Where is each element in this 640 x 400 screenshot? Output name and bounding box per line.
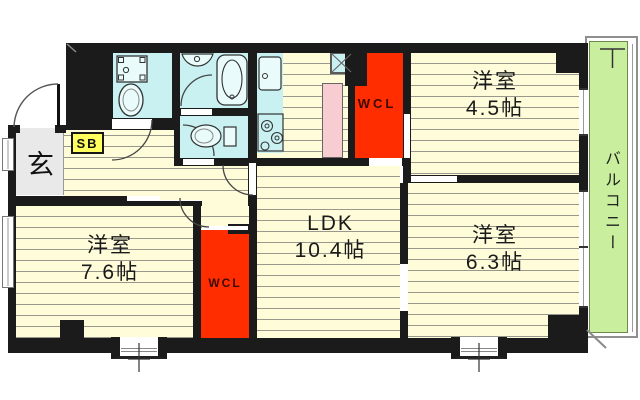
vanity-icon xyxy=(182,54,213,66)
corner-mark xyxy=(67,44,76,52)
stove-icon xyxy=(258,114,283,151)
washing-machine-icon xyxy=(117,56,147,82)
floorplan-annotations xyxy=(0,0,640,400)
room-area: 10.4帖 xyxy=(258,237,403,264)
room-label-west45: 洋室 4.5帖 xyxy=(410,68,580,123)
room-name: 洋室 xyxy=(410,222,580,249)
room-area: 7.6帖 xyxy=(30,259,190,286)
room-name: 洋室 xyxy=(410,68,580,95)
door-swing-arc xyxy=(180,198,209,227)
entrance-label: 玄 xyxy=(22,143,59,182)
toilet-icon xyxy=(191,125,236,147)
bathtub-icon xyxy=(217,55,247,105)
room-area: 6.3帖 xyxy=(410,249,580,276)
room-name: LDK xyxy=(258,210,403,237)
washbasin-icon xyxy=(119,84,143,116)
door-swing-arc xyxy=(181,75,212,106)
room-area: 4.5帖 xyxy=(410,95,580,122)
kitchen-sink-icon xyxy=(259,57,281,90)
wcl-bottom-label: WCL xyxy=(201,276,249,290)
room-label-ldk: LDK 10.4帖 xyxy=(258,210,403,265)
room-label-west76: 洋室 7.6帖 xyxy=(30,232,190,287)
balcony-label: バルコニー xyxy=(596,112,622,292)
door-swing-arc xyxy=(223,165,253,195)
hatch-cross-icon xyxy=(332,54,351,72)
room-label-west63: 洋室 6.3帖 xyxy=(410,222,580,277)
floor-plan: SB xyxy=(0,0,640,400)
wcl-top-label: WCL xyxy=(352,96,402,111)
door-swing-arc xyxy=(14,84,58,127)
door-swing-arc xyxy=(112,120,152,160)
bay-window-mark xyxy=(128,343,490,372)
room-name: 洋室 xyxy=(30,232,190,259)
